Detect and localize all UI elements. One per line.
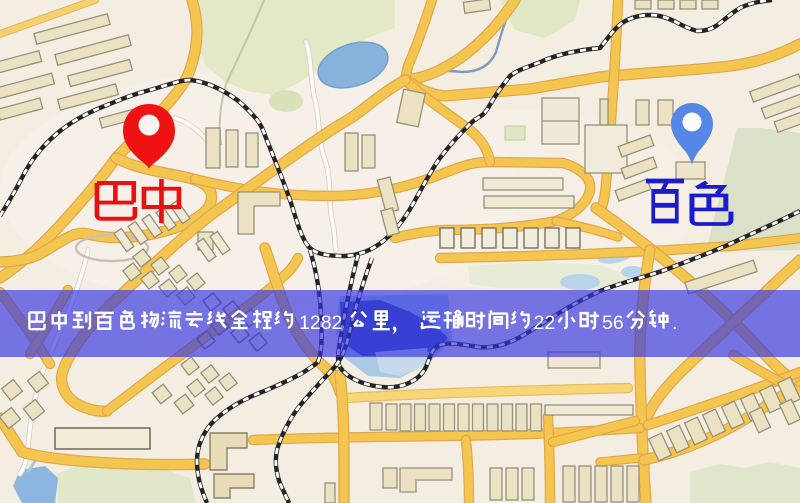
svg-text:56: 56	[602, 312, 624, 334]
svg-text:.: .	[672, 312, 677, 334]
svg-text:22: 22	[534, 312, 556, 334]
svg-text:1282: 1282	[299, 312, 342, 334]
